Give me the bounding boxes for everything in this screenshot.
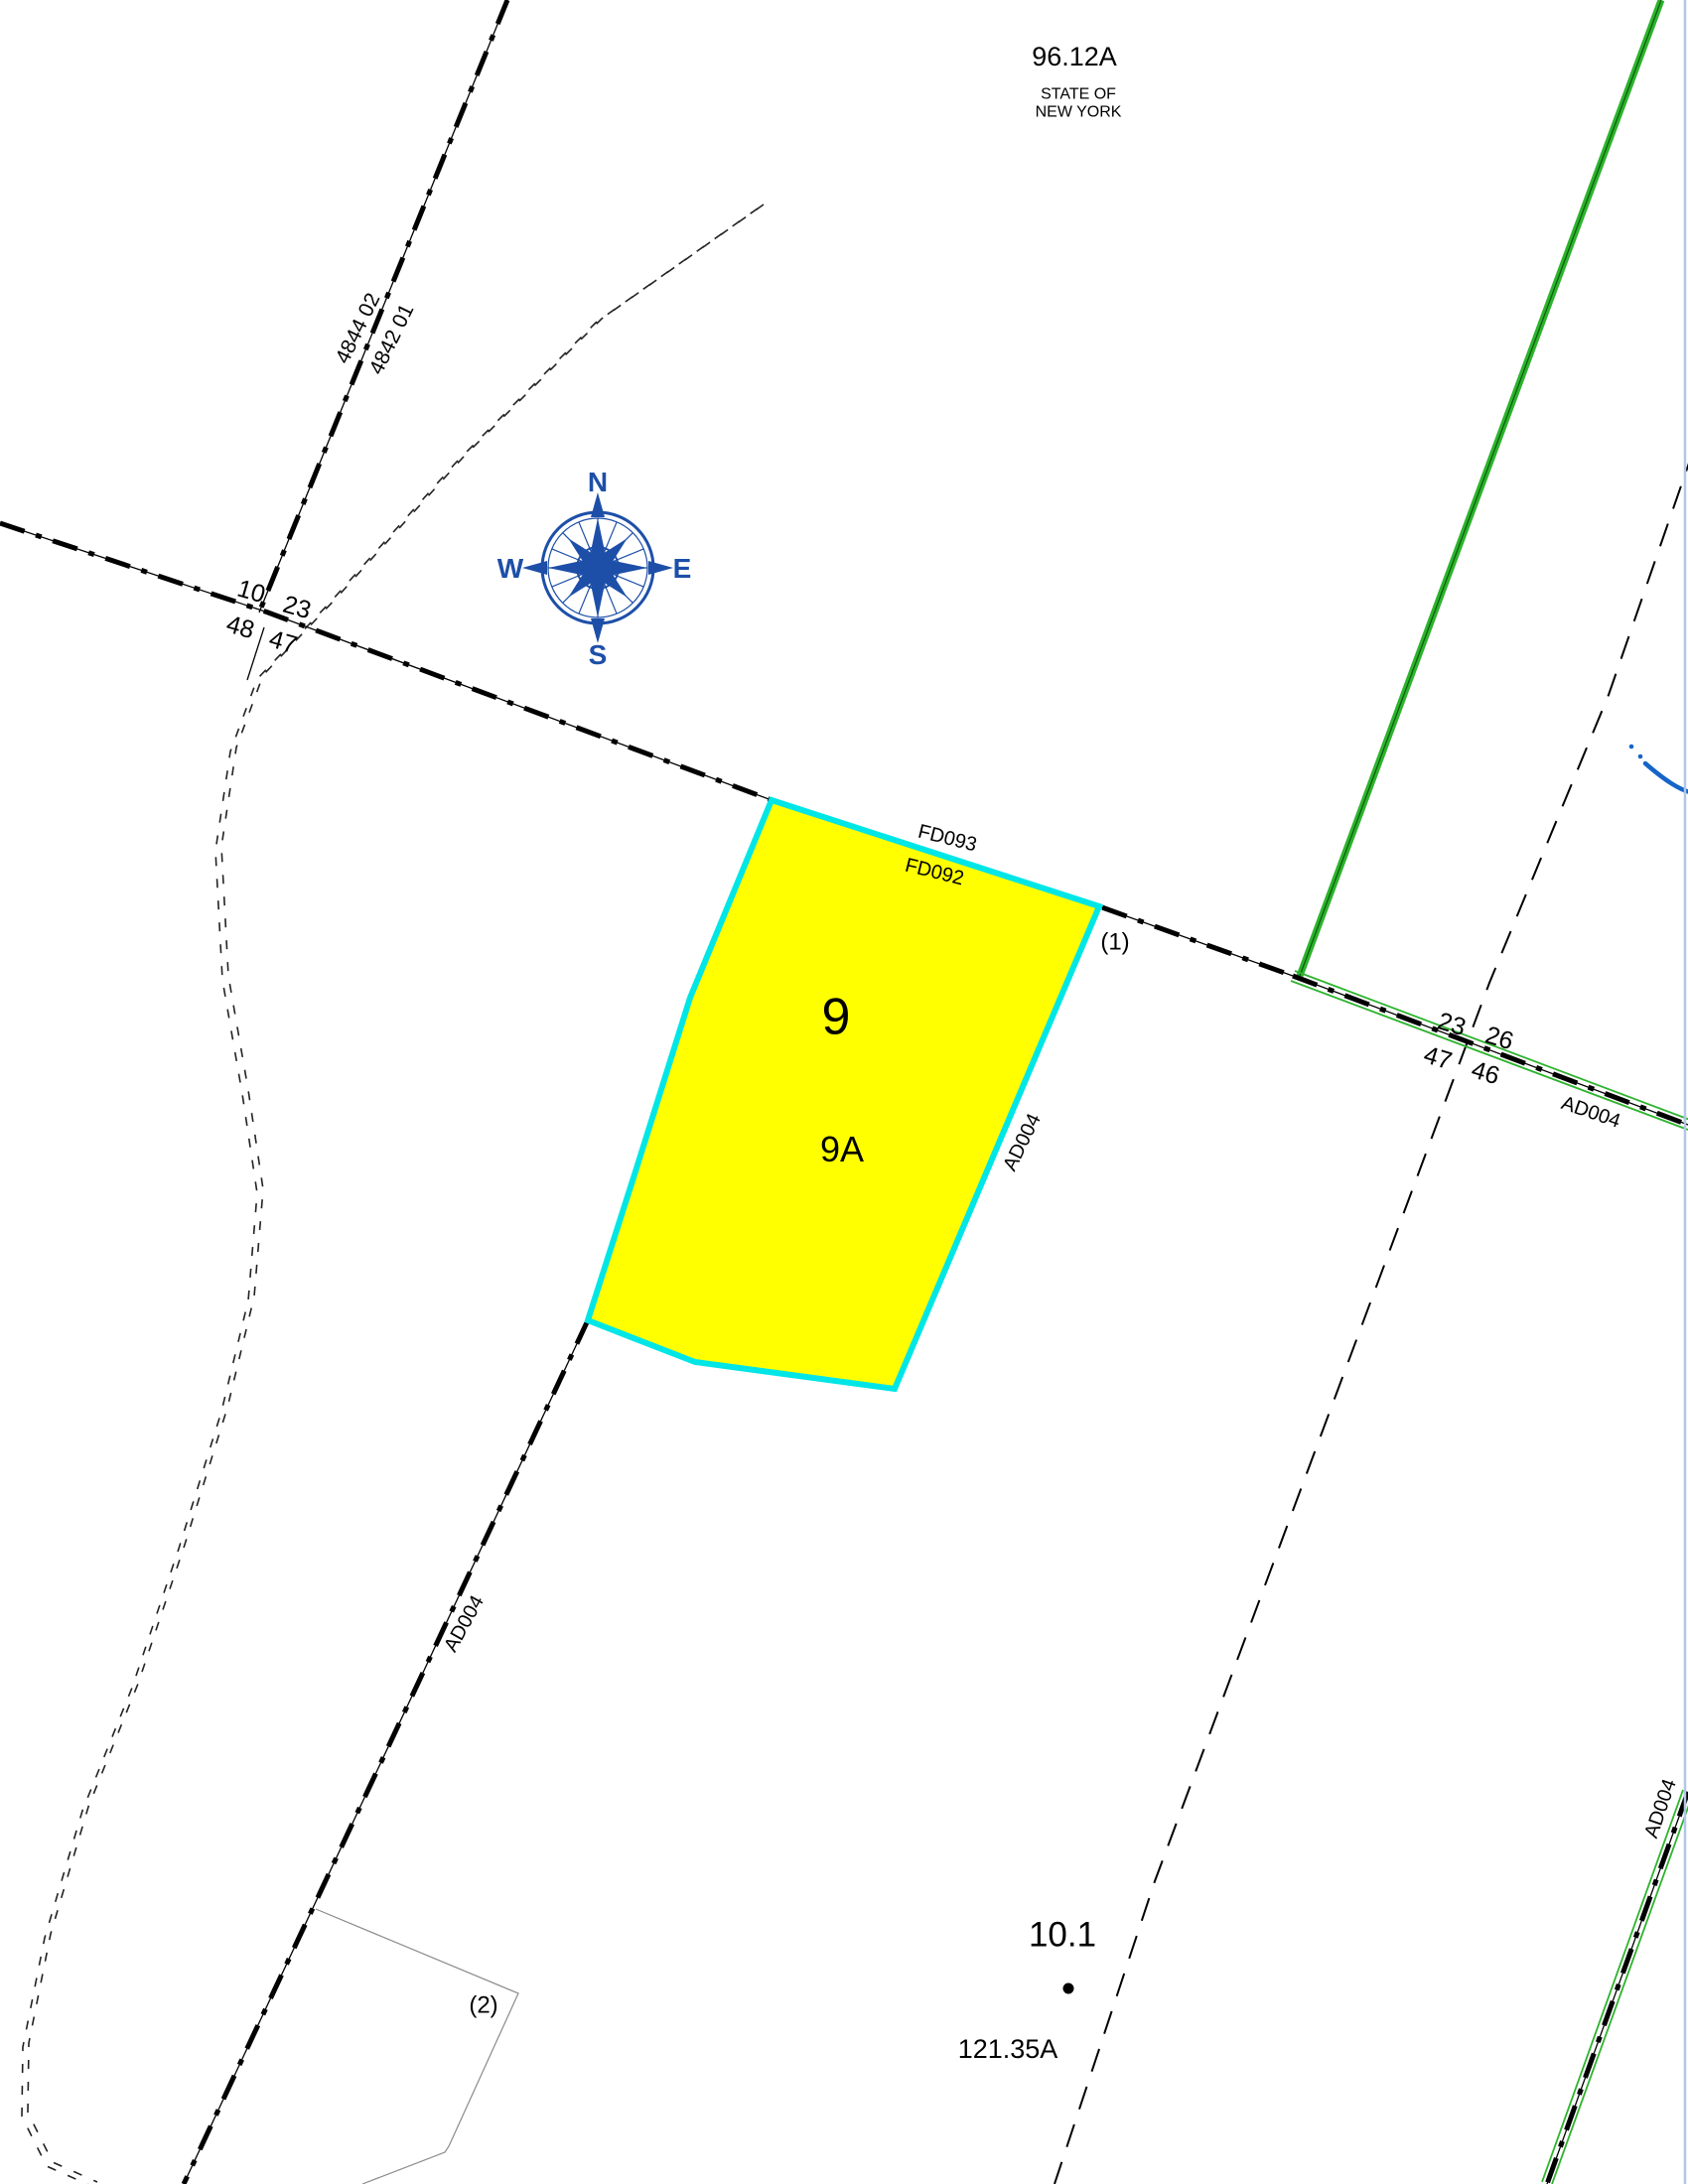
tax-parcel-map: 96.12A STATE OF NEW YORK 4844 02 4842 01… xyxy=(0,0,1688,2184)
label-parcel-10-1-acreage: 121.35A xyxy=(958,2035,1058,2063)
label-owner-line2: NEW YORK xyxy=(1036,105,1122,122)
parcel-boundary-dashed xyxy=(1055,449,1688,2184)
compass-south-label: S xyxy=(589,639,608,671)
label-parcel-note-2: (2) xyxy=(469,1992,497,2017)
label-parcel9-id: 9 xyxy=(822,991,851,1045)
compass-rose-icon xyxy=(522,492,673,643)
compass-west-label: W xyxy=(497,553,523,585)
parcel-outline-gray xyxy=(316,1909,518,2184)
label-state-parcel-acreage: 96.12A xyxy=(1032,43,1117,70)
label-parcel-10-1-id: 10.1 xyxy=(1029,1918,1096,1955)
compass-north-label: N xyxy=(588,467,608,498)
road-ad004-south xyxy=(184,1320,588,2184)
label-parcel9-note: (1) xyxy=(1100,929,1129,954)
label-owner-line1: STATE OF xyxy=(1041,87,1116,104)
parcel-9-polygon[interactable] xyxy=(588,800,1099,1389)
compass-east-label: E xyxy=(673,553,692,585)
stream-line xyxy=(1629,745,1688,792)
road-ad004-southeast xyxy=(1542,1790,1688,2184)
parcel-10-1-point[interactable] xyxy=(1063,1983,1074,1994)
label-parcel9-subid: 9A xyxy=(820,1131,864,1168)
map-canvas xyxy=(0,0,1688,2184)
green-boundary-line xyxy=(1300,0,1661,976)
road-ad004-east xyxy=(1291,971,1688,1130)
